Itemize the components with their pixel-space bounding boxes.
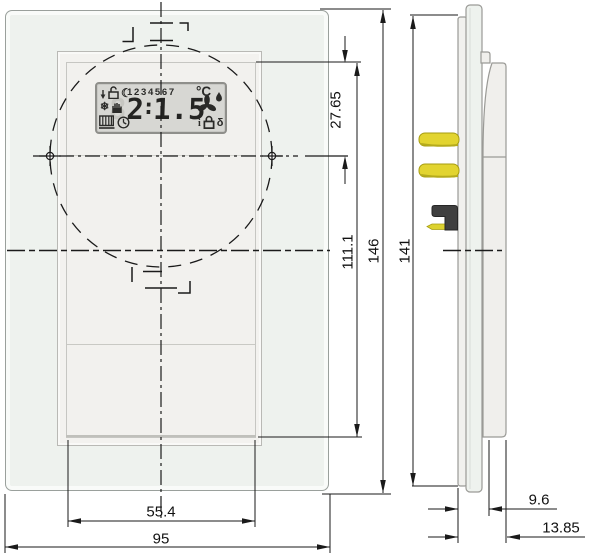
- arrow-13-85-right: [507, 534, 520, 540]
- key-icon: δ: [217, 118, 224, 129]
- info-icon: i: [198, 119, 201, 129]
- clock-icon: [117, 116, 130, 129]
- bus-connector-group: [419, 133, 459, 230]
- bus-pin-top-shade: [421, 144, 458, 146]
- fan-icon: [197, 95, 217, 115]
- lcd-icon-row-1: ☾: [100, 86, 132, 99]
- moon-icon: ☾: [121, 87, 132, 99]
- bus-pin-bottom-shade: [421, 175, 458, 177]
- dim-label-13-85: 13.85: [542, 520, 580, 537]
- button-area-bottom-edge: [66, 435, 256, 437]
- arrow-141-bottom: [410, 473, 416, 486]
- arrow-111-1-top: [354, 63, 360, 76]
- dim-label-9-6: 9.6: [529, 492, 550, 509]
- arrow-141-top: [410, 16, 416, 29]
- bus-pin-top: [419, 133, 459, 146]
- small-yellow-pin: [427, 224, 448, 230]
- arrow-95-right: [317, 544, 330, 550]
- dim-label-141: 141: [397, 238, 414, 263]
- snowflake-icon: ❄: [100, 102, 109, 113]
- arrow-9-6-right: [489, 506, 502, 512]
- lcd-lock-block: i δ: [198, 115, 223, 129]
- button-divider-lower: [67, 344, 255, 345]
- arrow-95-left: [5, 544, 18, 550]
- dim-label-146: 146: [366, 238, 383, 263]
- dim-label-55-4: 55.4: [146, 504, 175, 521]
- arrow-icon: [100, 90, 106, 99]
- bus-pin-bottom: [419, 164, 459, 177]
- open-lock-icon: [108, 86, 119, 99]
- side-front-housing: [483, 63, 506, 437]
- arrow-13-85-left: [445, 534, 458, 540]
- button-divider-center: [67, 155, 255, 156]
- arrow-146-bottom: [380, 480, 386, 493]
- radiator-icon: [99, 115, 115, 129]
- droplet-icon: [215, 92, 223, 103]
- arrow-9-6-left: [445, 506, 458, 512]
- dim-label-95: 95: [153, 531, 170, 548]
- side-view: [458, 5, 506, 492]
- lcd-icon-row-3: [99, 115, 130, 129]
- arrow-27-65-bottom: [342, 156, 348, 169]
- arrow-111-1-bottom: [354, 424, 360, 437]
- arrow-55-4-right: [242, 518, 255, 524]
- arrow-27-65-top: [342, 50, 348, 63]
- side-carrier-plate: [458, 17, 467, 486]
- dim-label-27-65: 27.65: [328, 91, 345, 129]
- dimension-drawing: 1234567 °C 82:1.5 ☾ ❄: [0, 0, 600, 560]
- dim-label-111-1: 111.1: [340, 234, 357, 269]
- lock-icon: [203, 115, 215, 129]
- side-glass-plate: [466, 5, 482, 492]
- hand-icon: [111, 101, 123, 113]
- arrow-55-4-left: [68, 518, 81, 524]
- lcd-fan-block: [197, 94, 225, 116]
- side-housing-step: [481, 52, 490, 63]
- arrow-146-top: [380, 10, 386, 23]
- lcd-icon-row-2: ❄: [100, 101, 123, 113]
- ext-depth: [458, 440, 506, 543]
- connector-clamp: [432, 206, 458, 231]
- lcd-display: 1234567 °C 82:1.5 ☾ ❄: [95, 82, 227, 134]
